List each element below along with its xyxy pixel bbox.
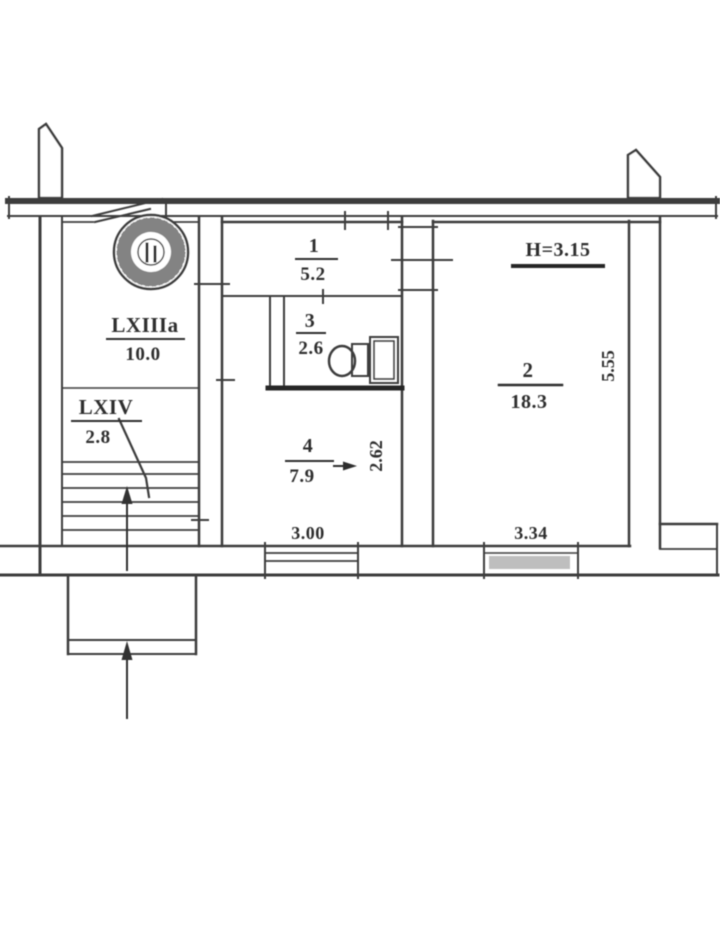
pilasters xyxy=(39,124,660,198)
dimension-texts: 3.00 3.34 2.62 5.55 xyxy=(291,350,618,543)
living-depth-dim: 5.55 xyxy=(598,350,618,382)
porch-arrow-head xyxy=(122,641,133,660)
left-pilaster xyxy=(39,124,62,198)
hall-label: 1 xyxy=(309,235,320,257)
living-room-window-icon xyxy=(484,543,578,578)
bathroom-area: 2.6 xyxy=(298,338,323,359)
kitchen-door-arrow-head xyxy=(343,462,357,471)
top-exterior-wall xyxy=(8,197,717,218)
windows xyxy=(265,543,578,578)
garbage-chute-icon xyxy=(114,215,188,289)
living-width-dim: 3.34 xyxy=(514,523,548,543)
chute-inner-circle xyxy=(138,239,164,265)
stairwell-area: 10.0 xyxy=(125,344,160,365)
floor-plan-page: LXIIIa 10.0 LXIV 2.8 1 5.2 3 2.6 4 7.9 2… xyxy=(0,0,720,940)
bathroom-label: 3 xyxy=(305,310,316,332)
kitchen-area: 7.9 xyxy=(289,466,314,487)
right-pilaster xyxy=(628,150,660,198)
entrance-arrows xyxy=(122,486,133,718)
kitchen-window-icon xyxy=(265,543,358,578)
vestibule-area: 2.8 xyxy=(85,427,110,448)
entrance-porch xyxy=(68,575,196,654)
bathroom-fixtures xyxy=(329,337,398,383)
window-sill-fill xyxy=(489,556,570,569)
stairwell-label: LXIIIa xyxy=(111,313,178,337)
living-room-label: 2 xyxy=(523,358,534,382)
water-heater-inner xyxy=(374,341,394,379)
kitchen-width-dim: 3.00 xyxy=(291,523,325,543)
staircase xyxy=(62,419,199,530)
ceiling-height-note: H=3.15 xyxy=(526,239,591,261)
kitchen-label: 4 xyxy=(303,435,314,457)
living-room-area: 18.3 xyxy=(511,391,548,413)
stair-break-line xyxy=(119,419,149,497)
horizontal-walls xyxy=(0,199,718,575)
floor-plan-drawing: LXIIIa 10.0 LXIV 2.8 1 5.2 3 2.6 4 7.9 2… xyxy=(0,0,720,940)
vestibule-label: LXIV xyxy=(79,395,134,419)
hall-area: 5.2 xyxy=(300,264,325,285)
kitchen-depth-dim: 2.62 xyxy=(366,440,386,472)
